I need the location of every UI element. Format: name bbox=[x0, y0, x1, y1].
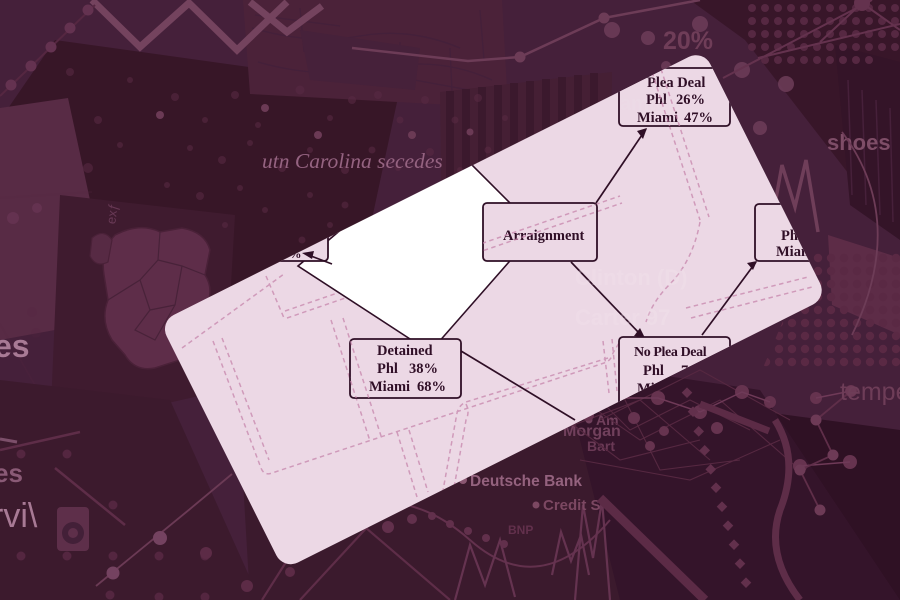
svg-text:BNP: BNP bbox=[508, 523, 533, 537]
svg-text:47%: 47% bbox=[684, 110, 713, 126]
svg-text:26%: 26% bbox=[676, 92, 705, 108]
svg-text:exƒ: exƒ bbox=[103, 202, 120, 225]
svg-text:Miami: Miami bbox=[369, 379, 410, 395]
svg-text:rvi\: rvi\ bbox=[0, 497, 38, 535]
svg-text:tempe: tempe bbox=[840, 378, 900, 406]
svg-text:20%: 20% bbox=[663, 27, 713, 55]
svg-text:Arraignment: Arraignment bbox=[503, 228, 585, 244]
svg-text:38%: 38% bbox=[409, 361, 438, 377]
svg-text:No Plea Deal: No Plea Deal bbox=[634, 345, 707, 360]
svg-text:amton: amton bbox=[620, 93, 680, 115]
svg-text:shoes: shoes bbox=[827, 130, 891, 155]
svg-text:Phl: Phl bbox=[643, 363, 664, 379]
svg-text:Phl: Phl bbox=[377, 361, 398, 377]
svg-text:Carter 97: Carter 97 bbox=[575, 305, 670, 330]
svg-text:Detained: Detained bbox=[377, 343, 433, 359]
svg-text:Deutsche Bank: Deutsche Bank bbox=[470, 473, 582, 490]
svg-text:Clinton (D): Clinton (D) bbox=[575, 265, 687, 290]
svg-text:es: es bbox=[0, 458, 23, 488]
svg-text:es: es bbox=[0, 328, 30, 364]
svg-text:68%: 68% bbox=[417, 379, 446, 395]
svg-text:Credit S: Credit S bbox=[543, 497, 601, 514]
svg-text:utn Carolina secedes: utn Carolina secedes bbox=[262, 149, 443, 173]
